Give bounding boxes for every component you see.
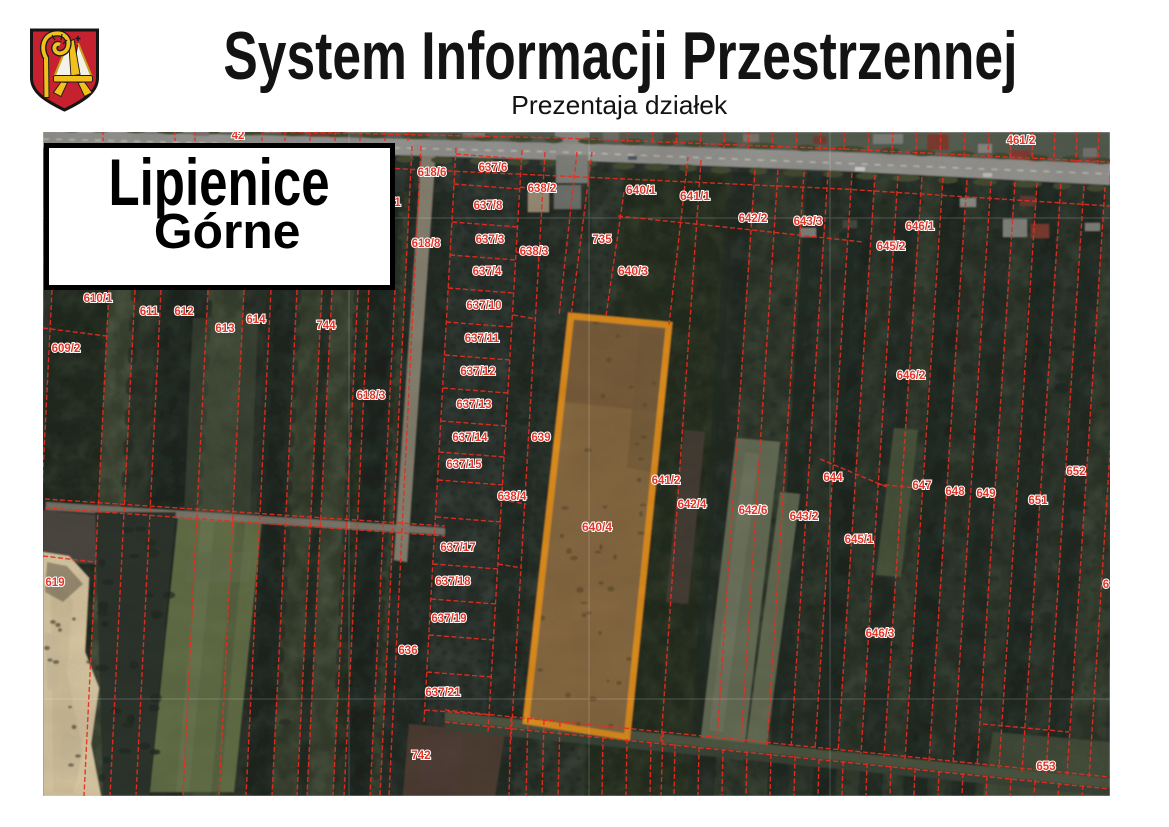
svg-text:610/1: 610/1 — [84, 293, 113, 305]
svg-text:6: 6 — [1103, 579, 1109, 591]
svg-text:646/1: 646/1 — [906, 221, 935, 233]
svg-text:742: 742 — [411, 750, 430, 762]
svg-text:637/3: 637/3 — [476, 234, 505, 246]
svg-text:637/11: 637/11 — [465, 333, 500, 345]
svg-text:645/1: 645/1 — [845, 534, 874, 546]
svg-text:637/18: 637/18 — [435, 576, 471, 588]
svg-text:637/13: 637/13 — [456, 399, 491, 411]
svg-text:646/2: 646/2 — [897, 370, 926, 382]
svg-text:637/6: 637/6 — [479, 162, 508, 174]
svg-text:636: 636 — [398, 645, 417, 657]
svg-text:637/10: 637/10 — [466, 300, 501, 312]
svg-text:638/2: 638/2 — [528, 183, 557, 195]
svg-text:644: 644 — [823, 472, 843, 484]
svg-text:653: 653 — [1036, 761, 1055, 773]
svg-text:735: 735 — [592, 234, 612, 246]
svg-text:637/17: 637/17 — [440, 542, 475, 554]
svg-text:649: 649 — [976, 488, 995, 500]
svg-text:637/8: 637/8 — [474, 200, 503, 212]
svg-text:611: 611 — [140, 306, 159, 318]
svg-text:647: 647 — [912, 480, 931, 492]
svg-text:619: 619 — [45, 577, 64, 589]
svg-text:638/4: 638/4 — [498, 491, 527, 503]
svg-text:637/14: 637/14 — [452, 432, 488, 444]
svg-text:618/3: 618/3 — [357, 390, 386, 402]
svg-text:618/8: 618/8 — [412, 238, 441, 250]
svg-text:642/4: 642/4 — [678, 499, 707, 511]
svg-text:643/3: 643/3 — [794, 216, 823, 228]
svg-text:640/4: 640/4 — [582, 520, 612, 534]
svg-text:642/6: 642/6 — [739, 505, 768, 517]
svg-text:652: 652 — [1066, 466, 1085, 478]
svg-text:639: 639 — [531, 432, 550, 444]
svg-text:637/4: 637/4 — [473, 266, 502, 278]
svg-text:618/6: 618/6 — [418, 167, 447, 179]
svg-text:643/2: 643/2 — [790, 511, 819, 523]
svg-text:637/12: 637/12 — [460, 366, 495, 378]
svg-text:612: 612 — [174, 306, 193, 318]
svg-text:609/2: 609/2 — [52, 343, 81, 355]
svg-text:642/2: 642/2 — [739, 213, 768, 225]
svg-text:640/1: 640/1 — [626, 183, 656, 197]
svg-text:640/3: 640/3 — [618, 264, 648, 278]
svg-text:614: 614 — [246, 314, 266, 326]
svg-text:637/21: 637/21 — [425, 687, 461, 699]
svg-text:641/1: 641/1 — [680, 189, 710, 203]
svg-text:641/2: 641/2 — [652, 475, 681, 487]
svg-text:613: 613 — [215, 323, 234, 335]
svg-text:648: 648 — [945, 486, 965, 498]
svg-text:744: 744 — [316, 320, 336, 332]
svg-text:637/19: 637/19 — [431, 613, 466, 625]
svg-text:461/2: 461/2 — [1007, 135, 1036, 147]
svg-text:638/3: 638/3 — [520, 246, 549, 258]
svg-text:645/2: 645/2 — [877, 241, 906, 253]
svg-text:637/15: 637/15 — [446, 459, 482, 471]
svg-text:646/3: 646/3 — [866, 628, 895, 640]
svg-text:42: 42 — [232, 132, 245, 142]
svg-text:651: 651 — [1028, 495, 1048, 507]
